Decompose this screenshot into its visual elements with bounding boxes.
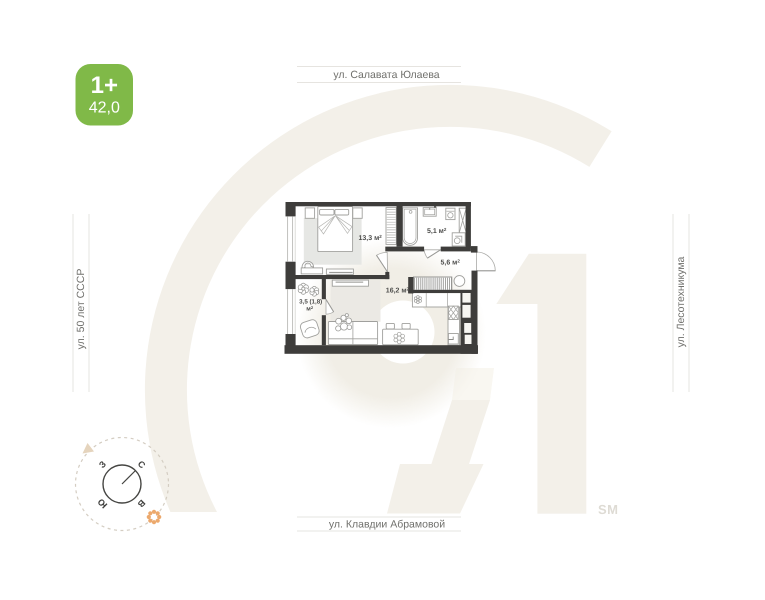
svg-text:ул. 50 лет СССР: ул. 50 лет СССР: [75, 269, 87, 350]
svg-text:5,1 м2: 5,1 м2: [427, 227, 447, 235]
svg-text:ул. Лесотехникума: ул. Лесотехникума: [675, 256, 687, 347]
svg-text:42,0: 42,0: [89, 100, 120, 117]
svg-text:ул. Салавата Юлаева: ул. Салавата Юлаева: [333, 69, 439, 81]
svg-text:З: З: [97, 459, 108, 470]
svg-text:1+: 1+: [91, 72, 118, 99]
svg-text:ул. Клавдии Абрамовой: ул. Клавдии Абрамовой: [329, 519, 445, 531]
svg-text:13,3 м2: 13,3 м2: [359, 234, 383, 242]
svg-text:16,2 м2: 16,2 м2: [386, 287, 410, 295]
svg-text:Ю: Ю: [96, 497, 110, 511]
svg-text:SM: SM: [598, 502, 619, 517]
svg-text:В: В: [135, 498, 147, 510]
svg-text:С: С: [136, 459, 148, 471]
